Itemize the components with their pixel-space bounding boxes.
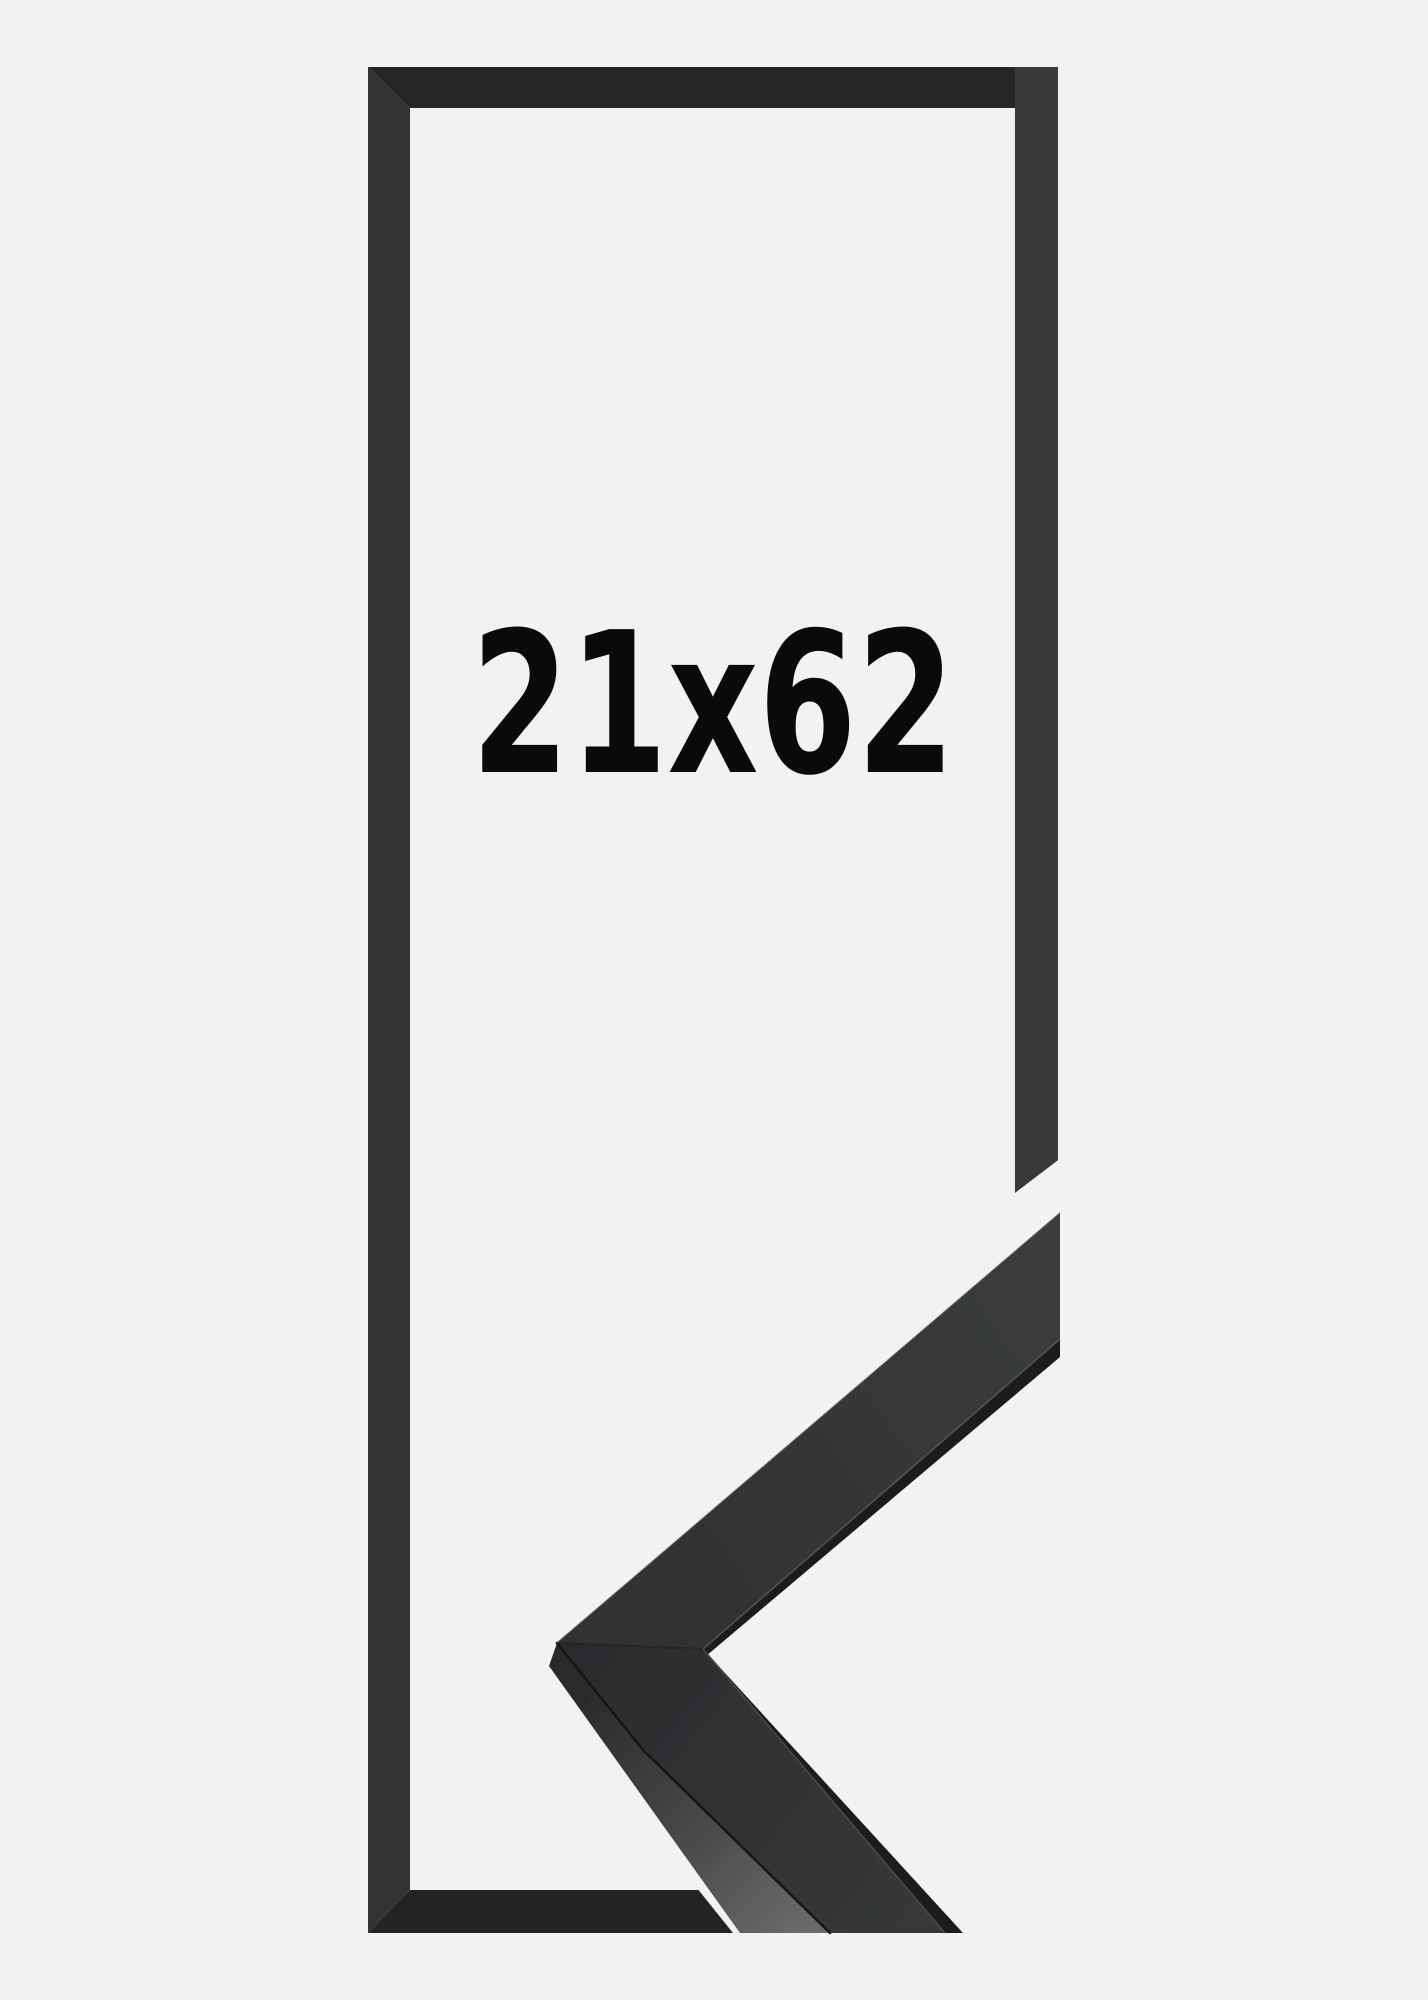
frame-right-bar (1015, 67, 1058, 1260)
frame-illustration (0, 0, 1428, 2000)
product-image: 21x62 (0, 0, 1428, 2000)
size-label: 21x62 (465, 607, 962, 803)
frame-top-bar (368, 67, 1015, 108)
frame-left-bar (368, 67, 410, 1933)
